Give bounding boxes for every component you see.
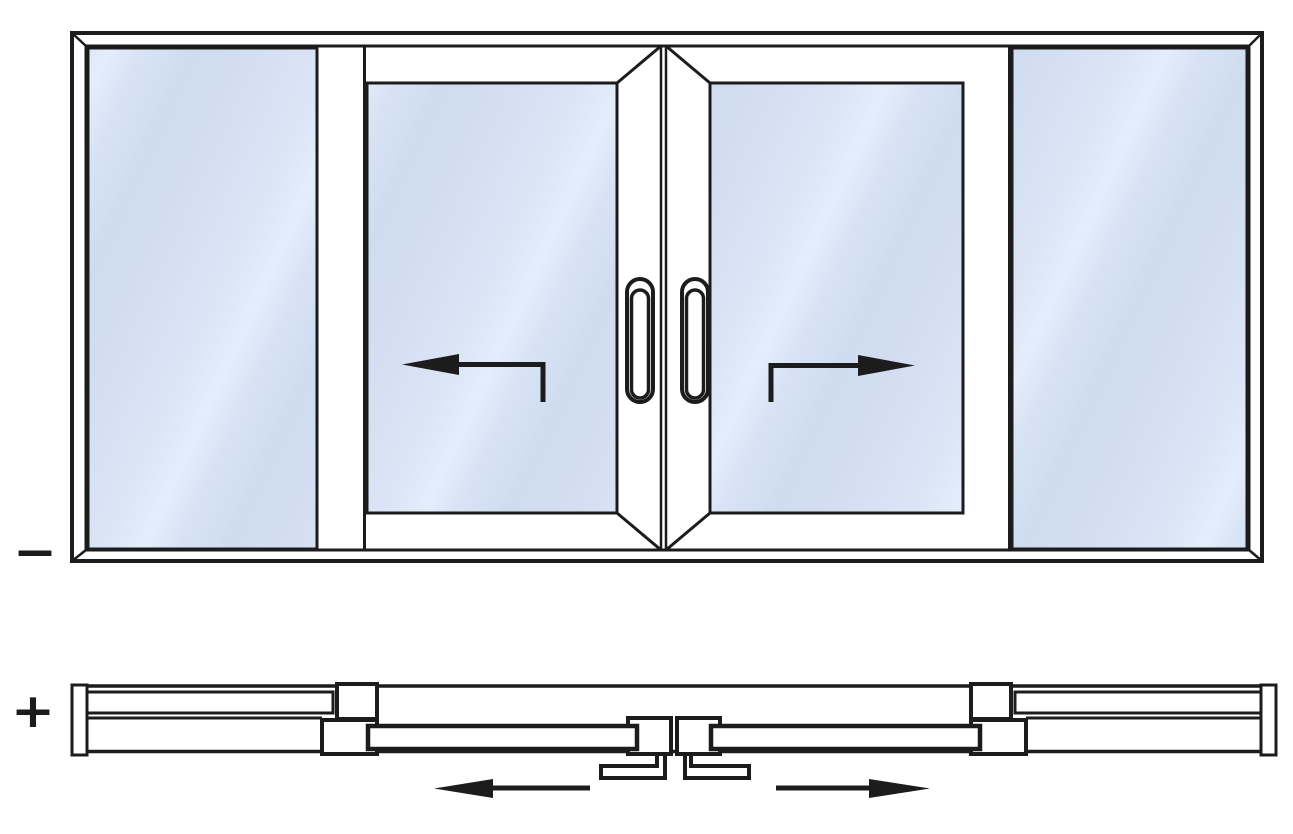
sliding-sash-left-glass [367,83,617,513]
plan-view [72,684,1276,798]
plan-slide-arrow-right [776,779,930,798]
fixed-panel-right-glass [1012,48,1247,549]
plan-sliding-panel-left [368,726,637,749]
plan-left-fixed-stile-block [337,684,377,719]
plan-fixed-panel-left [87,692,333,713]
floor-guide-bracket-left [601,753,665,778]
plan-right-fixed-stile-block [971,684,1011,719]
handle-right-grip [687,290,704,398]
plan-sliding-panel-right [711,726,980,749]
handle-left-grip [632,290,649,398]
sliding-door-diagram [0,0,1293,834]
plan-slide-arrow-left [434,779,590,798]
plan-fixed-panel-right [1015,692,1261,713]
fixed-panel-left-glass [88,48,317,549]
diagram-canvas: − + [0,0,1293,834]
handle-left [627,279,653,402]
plan-right-jamb-cap [1261,685,1276,755]
elevation-view [72,33,1262,561]
plan-left-jamb-cap [72,685,87,755]
floor-guide-bracket-right [685,753,749,778]
handle-right [682,279,708,402]
sliding-sash-right-glass [710,83,963,513]
